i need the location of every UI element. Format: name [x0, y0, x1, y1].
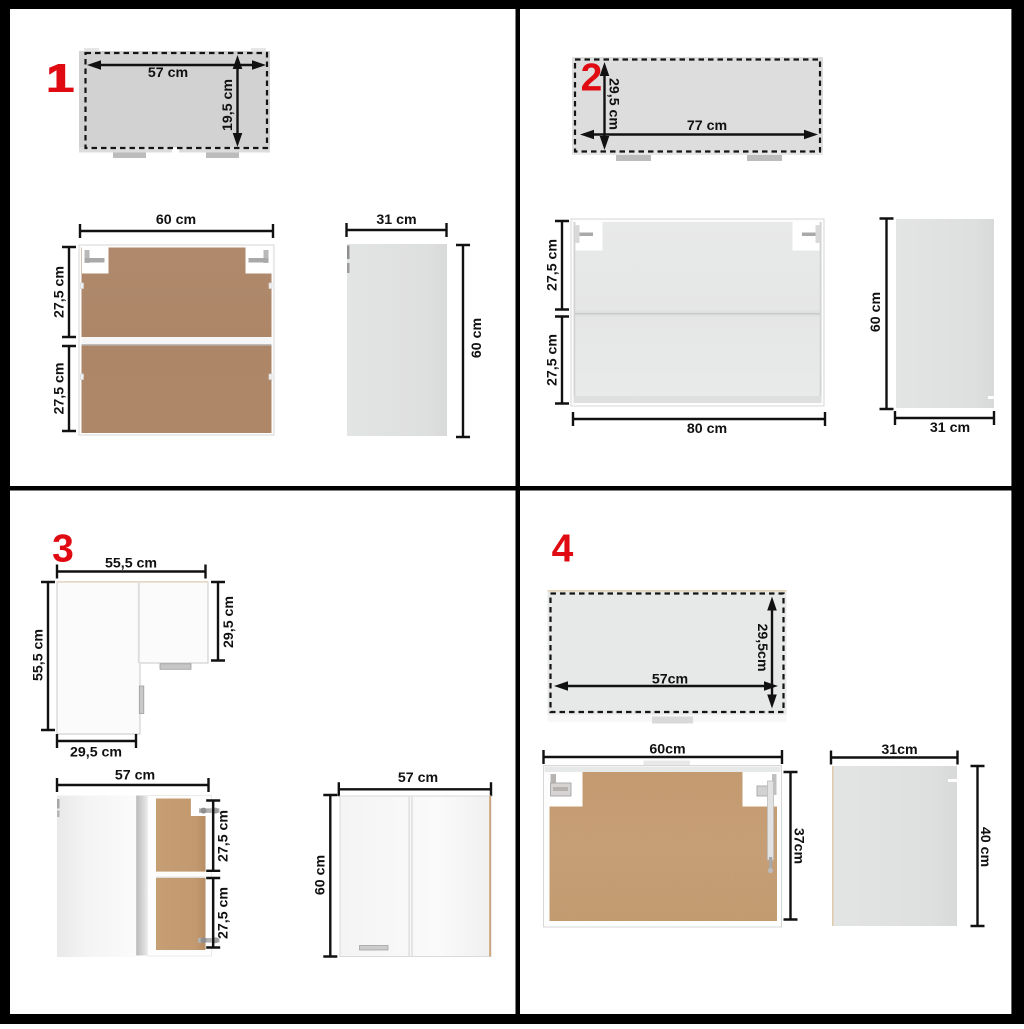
svg-text:31cm: 31cm — [881, 742, 917, 758]
svg-text:29,5cm: 29,5cm — [754, 623, 770, 671]
svg-text:29,5 cm: 29,5 cm — [606, 78, 622, 130]
svg-text:2: 2 — [581, 57, 603, 100]
svg-text:57 cm: 57 cm — [115, 768, 155, 784]
svg-text:80 cm: 80 cm — [687, 421, 727, 437]
svg-text:57cm: 57cm — [652, 672, 688, 688]
svg-text:19,5 cm: 19,5 cm — [220, 79, 236, 131]
svg-text:27,5 cm: 27,5 cm — [216, 887, 232, 939]
svg-text:4: 4 — [552, 528, 574, 571]
svg-text:27,5 cm: 27,5 cm — [216, 810, 232, 862]
svg-text:27,5 cm: 27,5 cm — [52, 266, 68, 318]
svg-text:60cm: 60cm — [649, 742, 685, 758]
svg-text:77 cm: 77 cm — [687, 118, 727, 134]
svg-text:57 cm: 57 cm — [398, 770, 438, 786]
svg-text:60 cm: 60 cm — [313, 855, 329, 895]
svg-text:27,5 cm: 27,5 cm — [545, 334, 561, 386]
svg-text:29,5 cm: 29,5 cm — [221, 596, 237, 648]
svg-text:27,5 cm: 27,5 cm — [545, 239, 561, 291]
svg-text:57 cm: 57 cm — [148, 65, 188, 81]
svg-text:55,5 cm: 55,5 cm — [105, 556, 157, 572]
svg-text:60 cm: 60 cm — [469, 318, 485, 358]
svg-text:27,5 cm: 27,5 cm — [52, 362, 68, 414]
svg-text:55,5 cm: 55,5 cm — [31, 629, 47, 681]
svg-text:3: 3 — [52, 528, 74, 571]
svg-text:40 cm: 40 cm — [977, 827, 993, 867]
svg-text:31 cm: 31 cm — [930, 420, 970, 436]
svg-text:31 cm: 31 cm — [376, 212, 416, 228]
svg-text:29,5 cm: 29,5 cm — [70, 745, 122, 761]
svg-text:60 cm: 60 cm — [156, 212, 196, 228]
svg-text:60 cm: 60 cm — [868, 292, 884, 332]
svg-text:37cm: 37cm — [791, 828, 807, 864]
